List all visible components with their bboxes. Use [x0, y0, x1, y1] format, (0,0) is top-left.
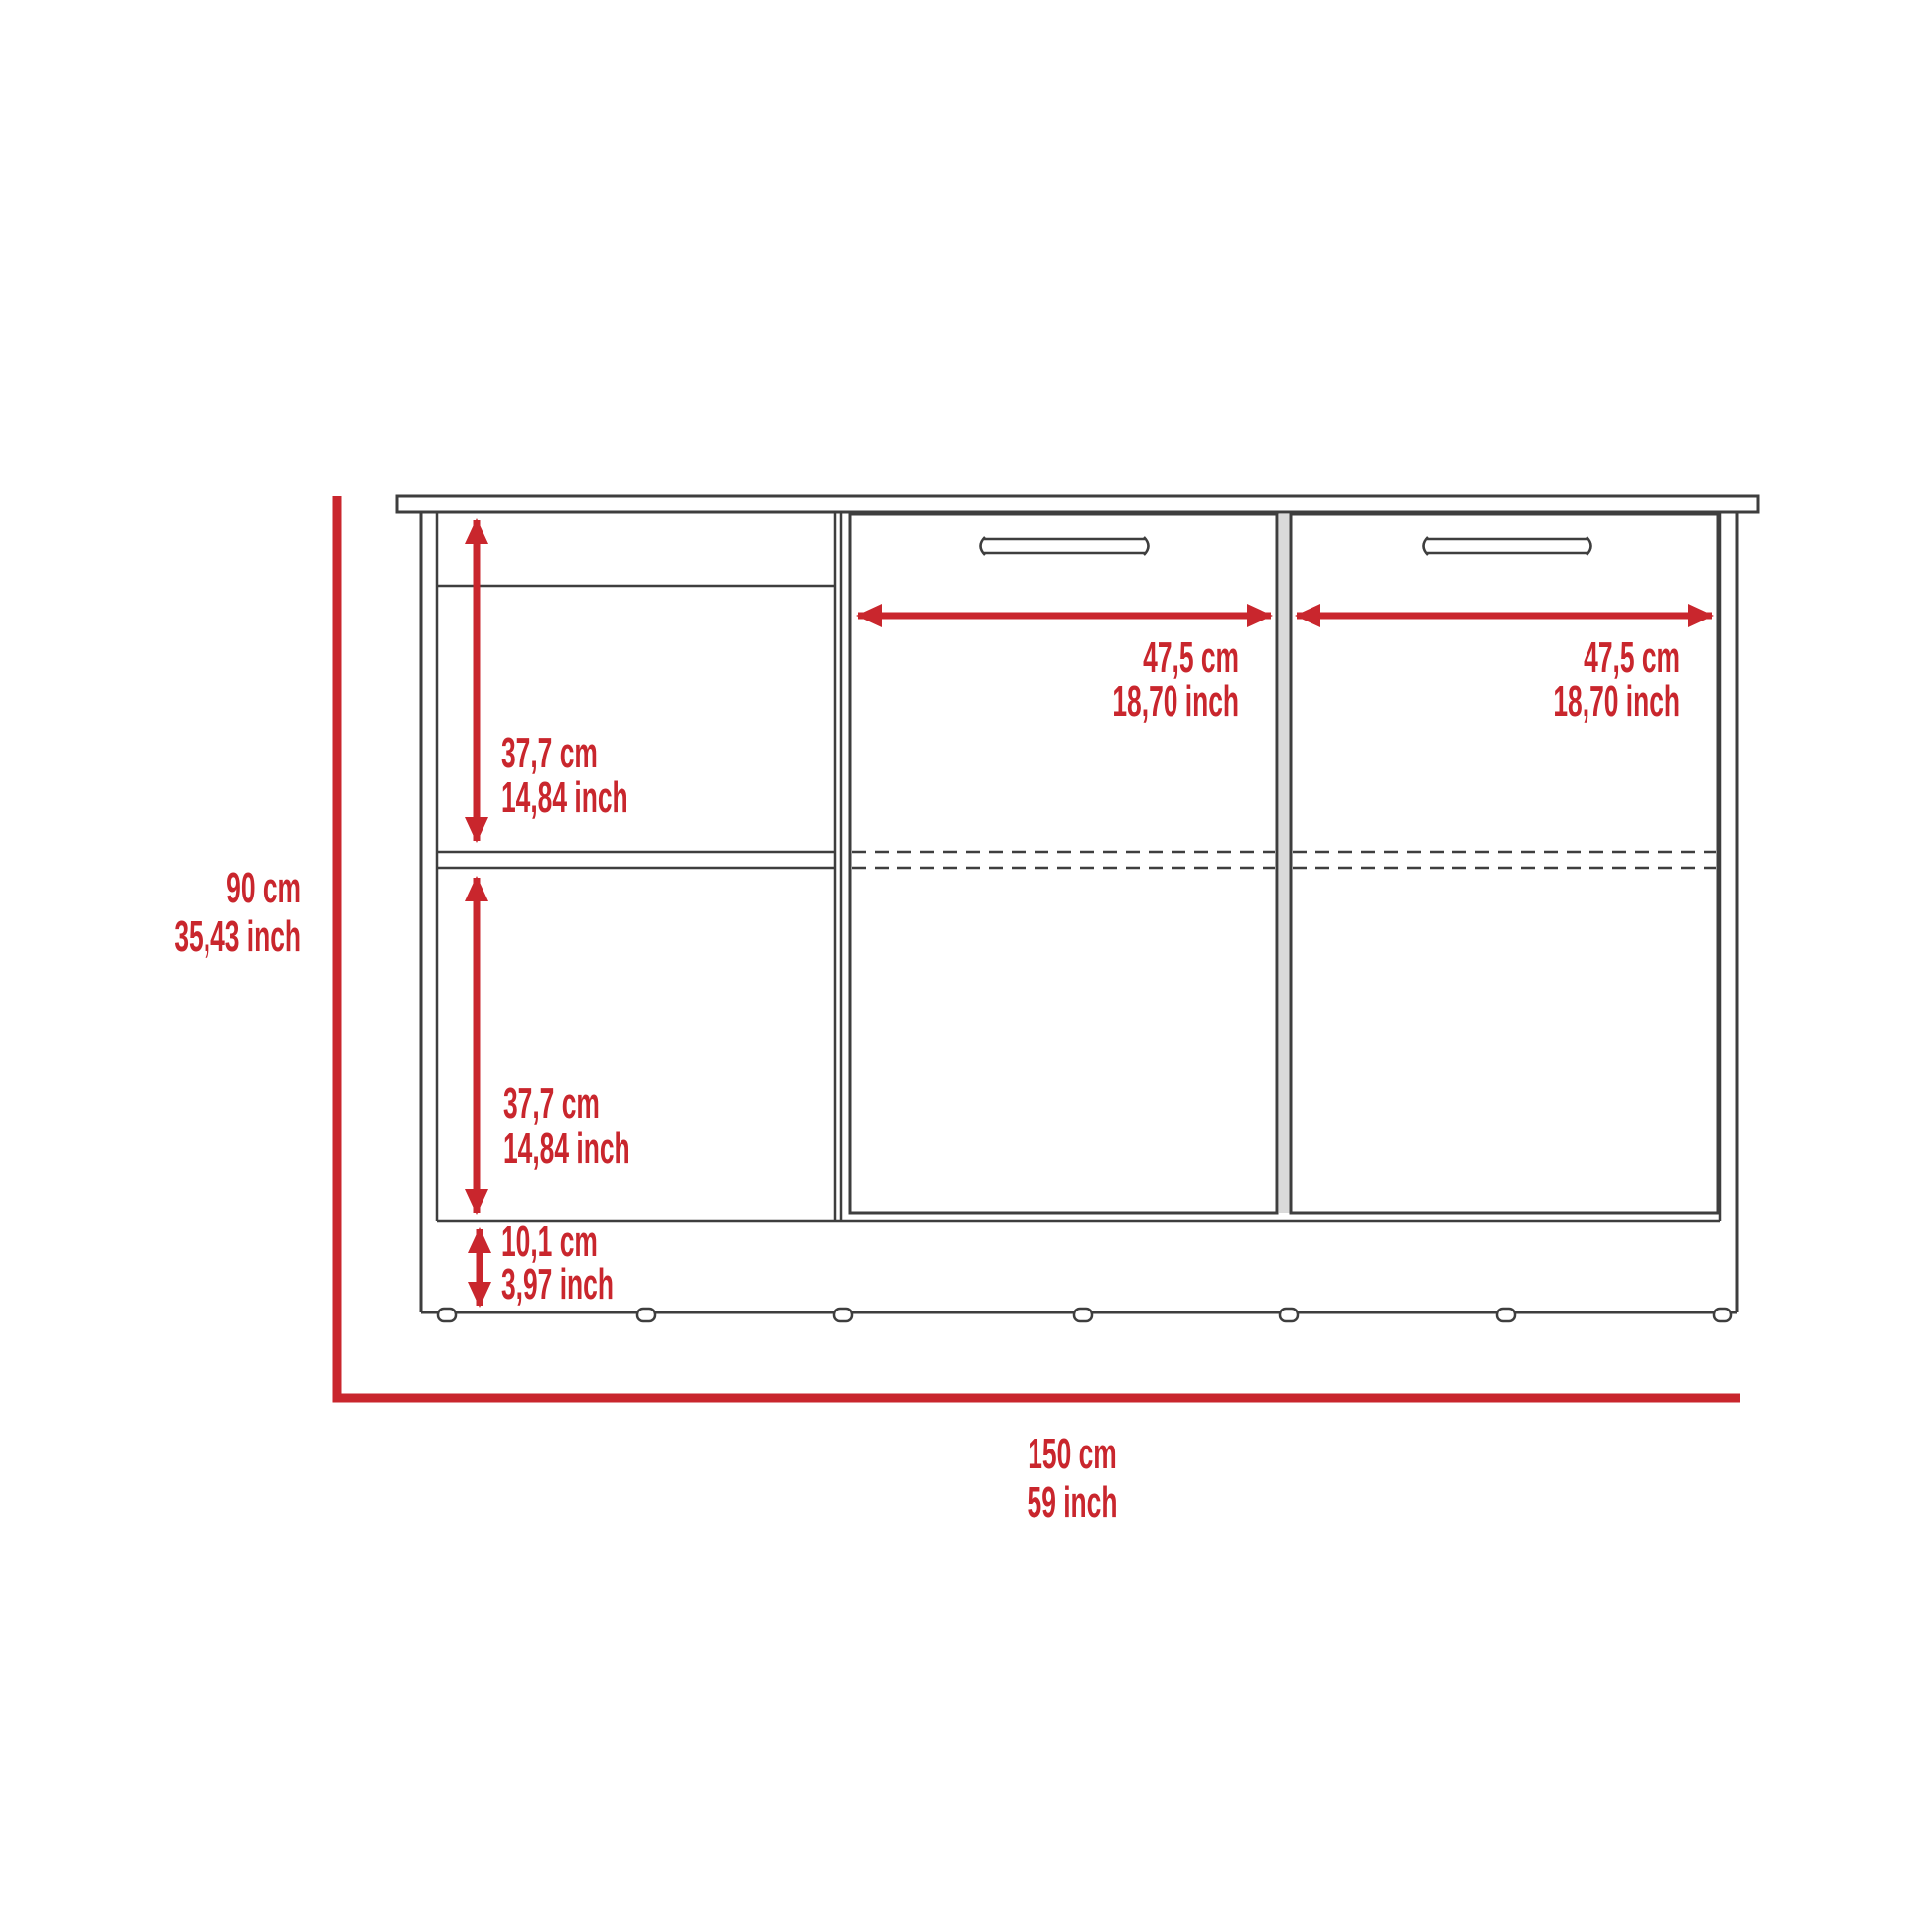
upper-shelf-inch-label: 14,84 inch: [501, 772, 628, 822]
base-height-inch-label: 3,97 inch: [501, 1259, 614, 1309]
furniture-dimension-diagram: 90 cm 35,43 inch 37,7 cm 14,84 inch 37,7…: [0, 0, 1932, 1932]
left-door-width-cm-label: 47,5 cm: [1143, 632, 1239, 682]
right-door-width-cm-label: 47,5 cm: [1584, 632, 1680, 682]
lower-shelf-inch-label: 14,84 inch: [503, 1123, 630, 1173]
open-shelf-section: [437, 512, 841, 1221]
left-door-width-inch-label: 18,70 inch: [1112, 676, 1239, 726]
overall-height-inch-label: 35,43 inch: [174, 911, 301, 961]
right-door: [1291, 514, 1718, 1213]
upper-shelf-cm-label: 37,7 cm: [501, 728, 598, 777]
left-door: [850, 514, 1277, 1213]
right-door-width-inch-label: 18,70 inch: [1553, 676, 1680, 726]
diagram-canvas: 90 cm 35,43 inch 37,7 cm 14,84 inch 37,7…: [0, 0, 1932, 1932]
lower-shelf-cm-label: 37,7 cm: [503, 1078, 600, 1128]
overall-height-cm-label: 90 cm: [226, 863, 301, 912]
overall-width-cm-label: 150 cm: [1028, 1429, 1116, 1478]
center-post: [1279, 514, 1291, 1213]
overall-width-inch-label: 59 inch: [1028, 1477, 1118, 1527]
cabinet-feet: [438, 1309, 1731, 1321]
cabinet-countertop: [397, 496, 1758, 512]
